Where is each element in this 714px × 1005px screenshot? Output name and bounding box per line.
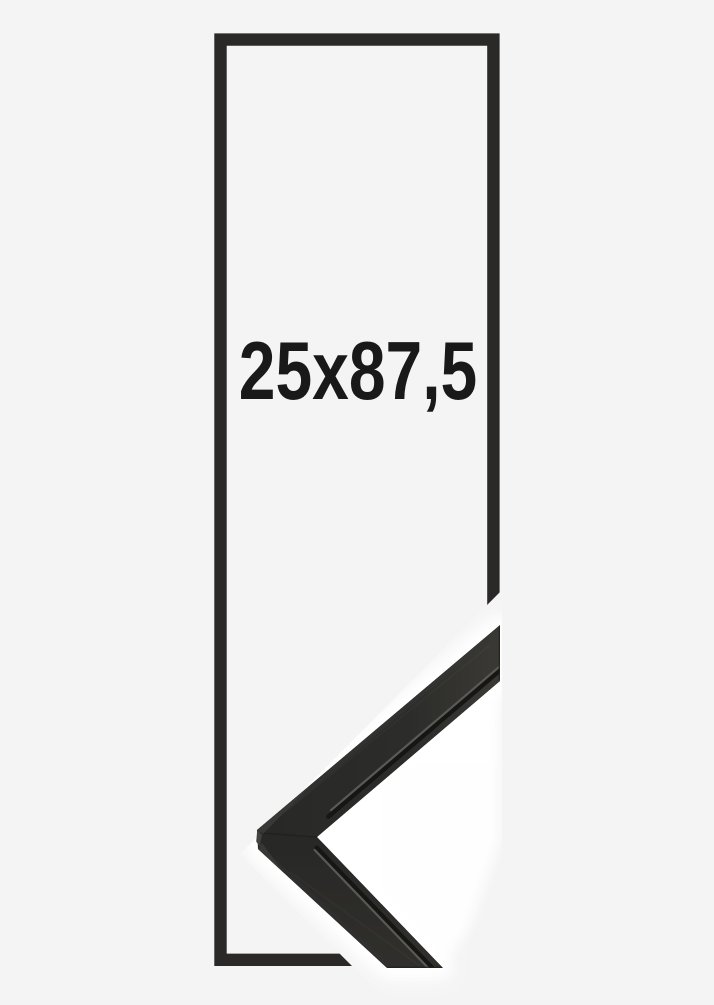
svg-text:25x87,5: 25x87,5 xyxy=(239,324,478,417)
